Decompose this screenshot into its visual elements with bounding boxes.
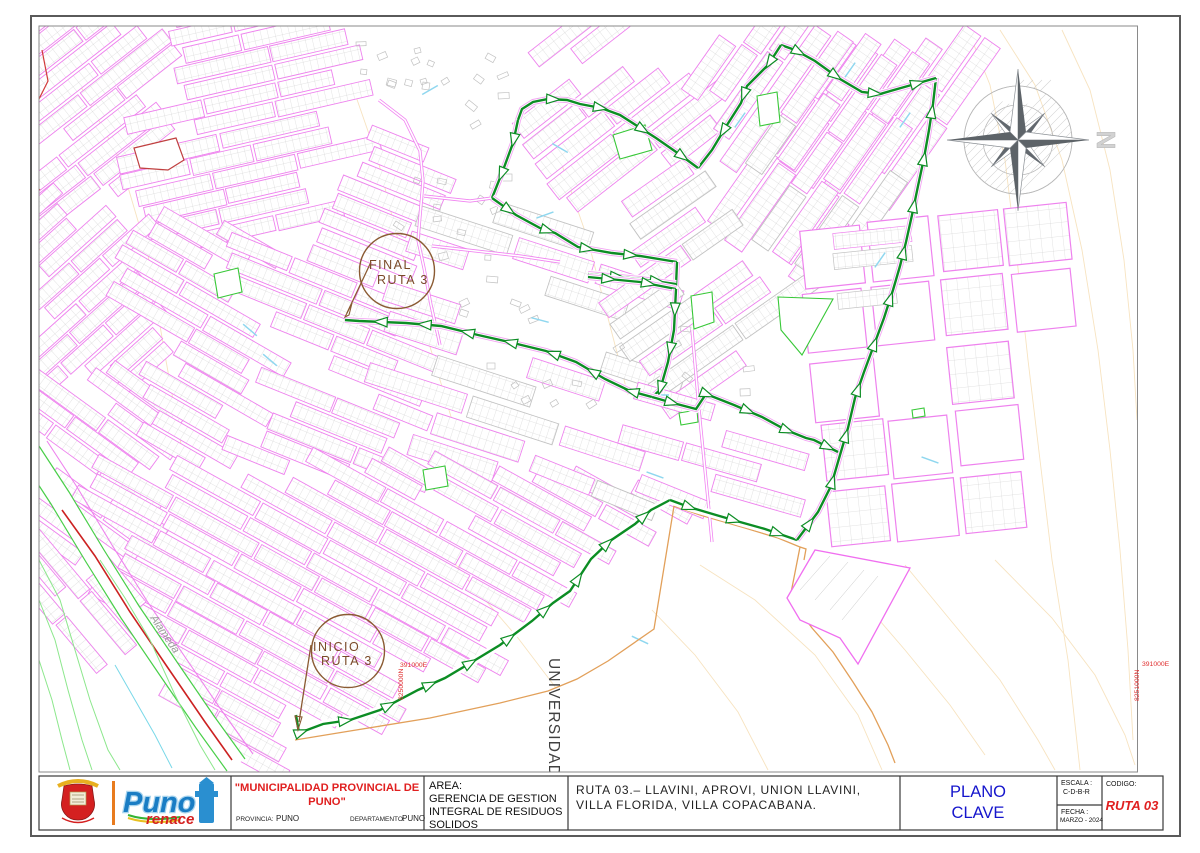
svg-text:N: N: [1091, 131, 1121, 150]
svg-text:PUNO: PUNO: [402, 814, 425, 823]
svg-text:ESCALA :: ESCALA :: [1061, 780, 1092, 787]
svg-text:MARZO - 2024: MARZO - 2024: [1060, 817, 1103, 824]
svg-text:C-D-B-R: C-D-B-R: [1063, 789, 1090, 796]
svg-text:AREA:: AREA:: [429, 780, 462, 792]
svg-text:PROVINCIA:: PROVINCIA:: [236, 816, 274, 823]
svg-text:391000E: 391000E: [1142, 661, 1170, 668]
svg-text:CODIGO:: CODIGO:: [1106, 781, 1136, 788]
svg-text:INICIO: INICIO: [313, 640, 360, 654]
svg-text:PLANO: PLANO: [950, 783, 1006, 801]
svg-text:INTEGRAL DE RESIDUOS: INTEGRAL DE RESIDUOS: [429, 806, 562, 818]
svg-text:PUNO": PUNO": [308, 796, 346, 808]
svg-text:DEPARTAMENTO:: DEPARTAMENTO:: [350, 816, 405, 823]
svg-text:RUTA 3: RUTA 3: [377, 273, 429, 287]
svg-text:8251000N: 8251000N: [1134, 670, 1141, 701]
svg-text:RUTA 03.– LLAVINI, APROVI, UNI: RUTA 03.– LLAVINI, APROVI, UNION LLAVINI…: [576, 783, 861, 797]
svg-text:8250000N: 8250000N: [398, 669, 405, 700]
svg-text:renace: renace: [146, 811, 194, 828]
svg-text:RUTA 3: RUTA 3: [321, 654, 373, 668]
svg-text:PUNO: PUNO: [276, 814, 299, 823]
svg-text:VILLA FLORIDA, VILLA COPACABAN: VILLA FLORIDA, VILLA COPACABANA.: [576, 798, 817, 812]
svg-text:GERENCIA DE GESTION: GERENCIA DE GESTION: [429, 793, 557, 805]
svg-text:FECHA :: FECHA :: [1061, 809, 1088, 816]
svg-text:SOLIDOS: SOLIDOS: [429, 819, 478, 831]
svg-text:CLAVE: CLAVE: [952, 804, 1005, 822]
svg-text:UNIVERSIDAD: UNIVERSIDAD: [545, 658, 562, 777]
svg-text:FINAL: FINAL: [369, 258, 412, 272]
svg-text:RUTA 03: RUTA 03: [1106, 798, 1160, 813]
svg-text:"MUNICIPALIDAD PROVINCIAL DE: "MUNICIPALIDAD PROVINCIAL DE: [235, 782, 420, 794]
svg-text:391000E: 391000E: [400, 662, 428, 669]
